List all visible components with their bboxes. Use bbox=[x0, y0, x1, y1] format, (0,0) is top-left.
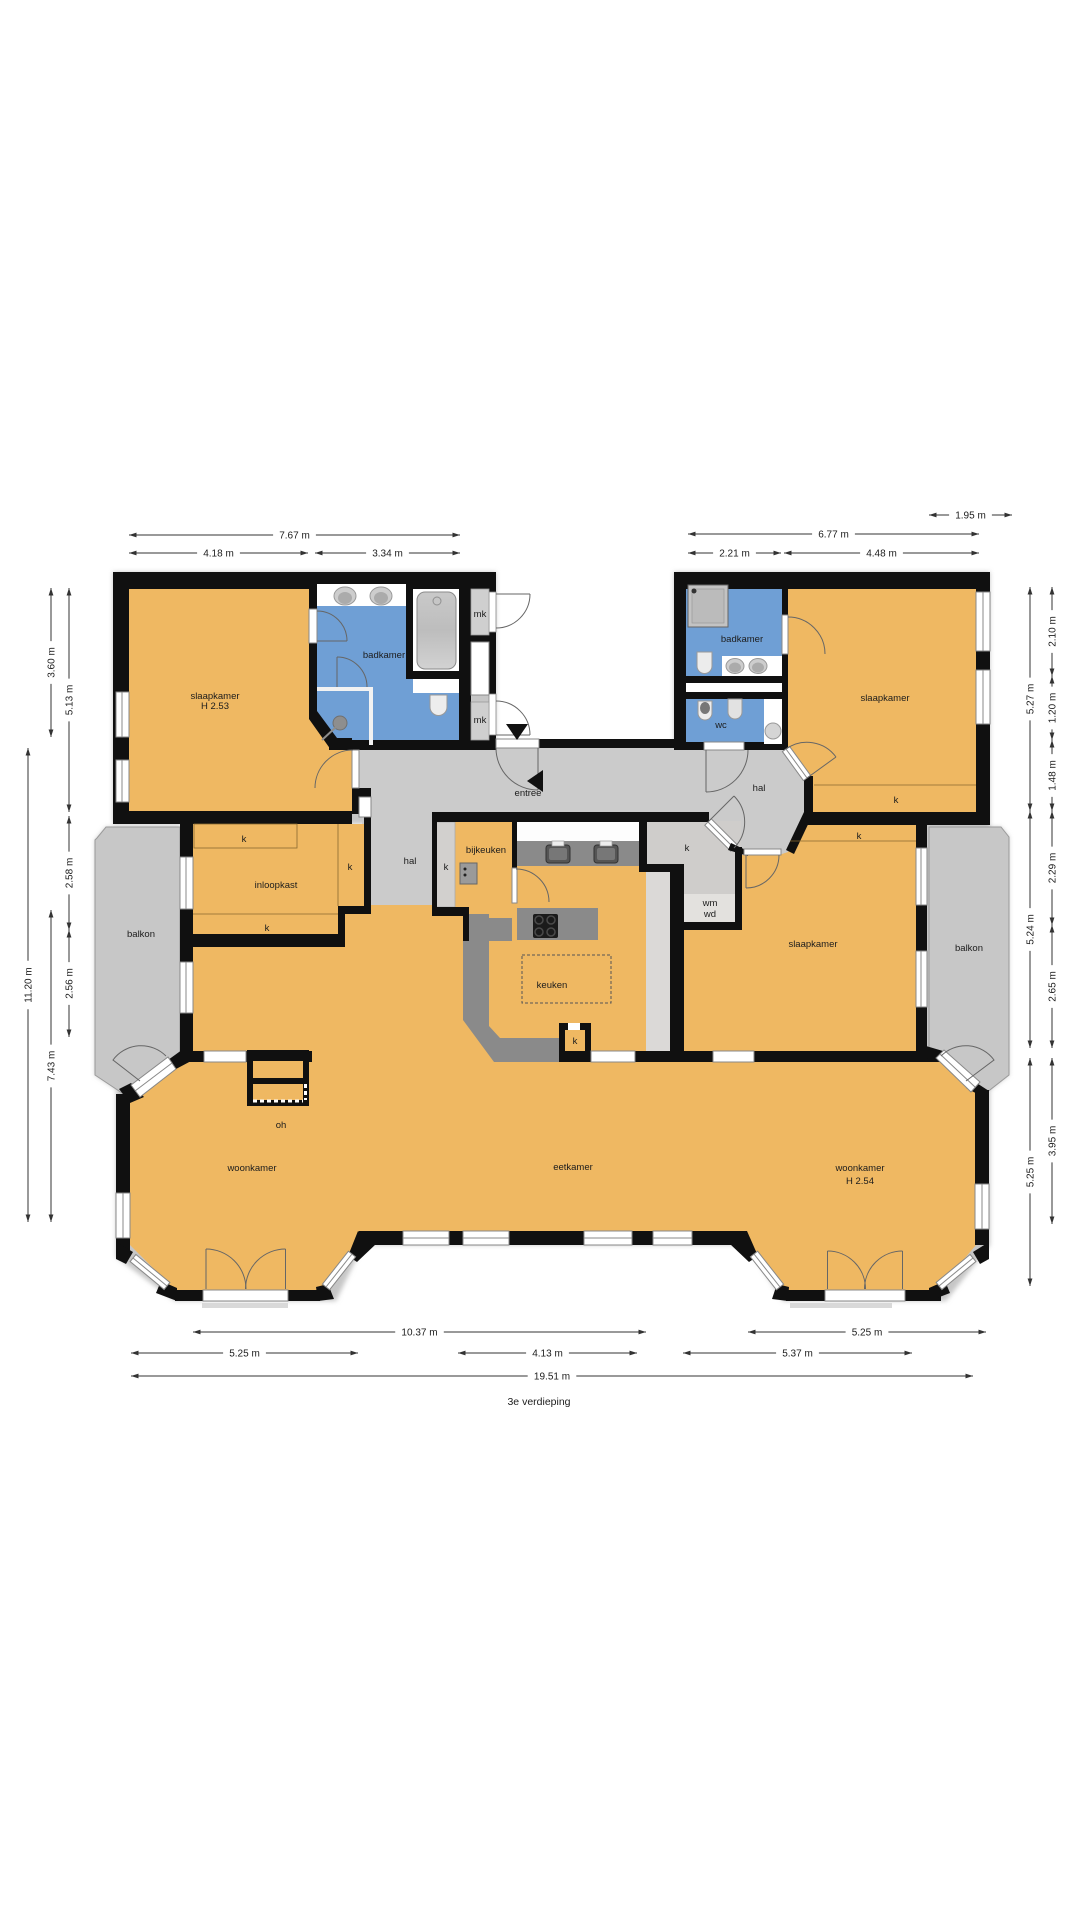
svg-text:5.25 m: 5.25 m bbox=[852, 1328, 883, 1339]
svg-text:wc: wc bbox=[714, 720, 727, 731]
svg-text:k: k bbox=[857, 831, 862, 842]
svg-text:hal: hal bbox=[404, 856, 417, 867]
svg-text:k: k bbox=[265, 923, 270, 934]
svg-text:3.60 m: 3.60 m bbox=[47, 647, 58, 678]
svg-text:7.67 m: 7.67 m bbox=[279, 531, 310, 542]
svg-text:inloopkast: inloopkast bbox=[255, 880, 298, 891]
svg-text:slaapkamer: slaapkamer bbox=[860, 693, 909, 704]
svg-text:5.25 m: 5.25 m bbox=[1026, 1157, 1037, 1188]
svg-text:badkamer: badkamer bbox=[363, 650, 405, 661]
svg-text:7.43 m: 7.43 m bbox=[47, 1051, 58, 1082]
svg-text:1.48 m: 1.48 m bbox=[1048, 760, 1059, 791]
svg-text:10.37 m: 10.37 m bbox=[401, 1328, 437, 1339]
svg-text:oh: oh bbox=[276, 1120, 287, 1131]
svg-text:4.18 m: 4.18 m bbox=[203, 549, 234, 560]
svg-text:5.24 m: 5.24 m bbox=[1026, 914, 1037, 945]
svg-text:balkon: balkon bbox=[955, 943, 983, 954]
svg-text:2.21 m: 2.21 m bbox=[719, 549, 750, 560]
svg-text:badkamer: badkamer bbox=[721, 634, 763, 645]
svg-text:mk: mk bbox=[474, 609, 487, 620]
svg-text:5.13 m: 5.13 m bbox=[65, 685, 76, 716]
svg-text:woonkamer: woonkamer bbox=[834, 1163, 884, 1174]
svg-text:k: k bbox=[685, 843, 690, 854]
svg-text:k: k bbox=[894, 795, 899, 806]
svg-text:woonkamer: woonkamer bbox=[226, 1163, 276, 1174]
svg-text:2.58 m: 2.58 m bbox=[65, 858, 76, 889]
svg-text:k: k bbox=[444, 862, 449, 873]
svg-text:6.77 m: 6.77 m bbox=[818, 530, 849, 541]
svg-text:2.29 m: 2.29 m bbox=[1048, 853, 1059, 884]
svg-text:k: k bbox=[573, 1036, 578, 1047]
svg-text:k: k bbox=[348, 862, 353, 873]
svg-text:k: k bbox=[242, 834, 247, 845]
svg-text:2.56 m: 2.56 m bbox=[65, 968, 76, 999]
svg-text:keuken: keuken bbox=[537, 980, 568, 991]
svg-text:3e verdieping: 3e verdieping bbox=[507, 1396, 570, 1408]
svg-text:mk: mk bbox=[474, 715, 487, 726]
svg-text:19.51 m: 19.51 m bbox=[534, 1372, 570, 1383]
svg-text:11.20 m: 11.20 m bbox=[24, 967, 35, 1002]
svg-text:wd: wd bbox=[703, 909, 716, 920]
svg-text:3.34 m: 3.34 m bbox=[372, 549, 403, 560]
svg-text:bijkeuken: bijkeuken bbox=[466, 845, 506, 856]
svg-text:balkon: balkon bbox=[127, 929, 155, 940]
svg-text:5.25 m: 5.25 m bbox=[229, 1349, 260, 1360]
svg-text:3.95 m: 3.95 m bbox=[1048, 1126, 1059, 1157]
svg-text:5.37 m: 5.37 m bbox=[782, 1349, 813, 1360]
svg-text:slaapkamer: slaapkamer bbox=[788, 939, 837, 950]
svg-text:H 2.54: H 2.54 bbox=[846, 1176, 874, 1187]
svg-text:4.13 m: 4.13 m bbox=[532, 1349, 563, 1360]
svg-text:entree: entree bbox=[515, 788, 542, 799]
svg-text:wm: wm bbox=[702, 898, 718, 909]
svg-text:eetkamer: eetkamer bbox=[553, 1162, 593, 1173]
svg-text:5.27 m: 5.27 m bbox=[1026, 684, 1037, 715]
svg-text:1.95 m: 1.95 m bbox=[955, 511, 986, 522]
svg-text:4.48 m: 4.48 m bbox=[866, 549, 897, 560]
svg-text:2.65 m: 2.65 m bbox=[1048, 971, 1059, 1002]
svg-text:hal: hal bbox=[753, 783, 766, 794]
svg-text:1.20 m: 1.20 m bbox=[1048, 693, 1059, 724]
svg-text:2.10 m: 2.10 m bbox=[1048, 616, 1059, 647]
svg-text:H 2.53: H 2.53 bbox=[201, 701, 229, 712]
